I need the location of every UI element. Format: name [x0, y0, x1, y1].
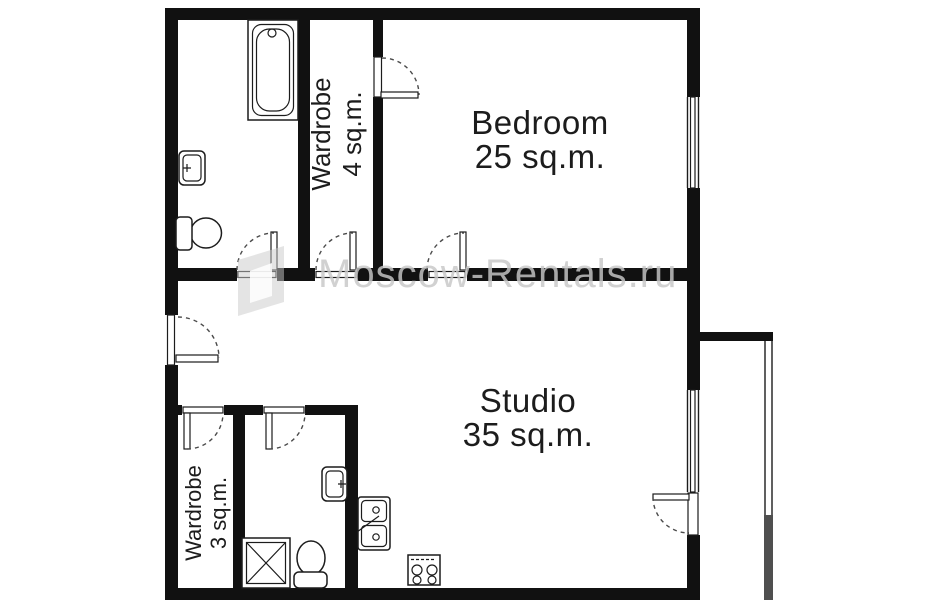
wall-middle-seg1 — [178, 268, 237, 281]
wall-wardrobe4-bedroom-upper — [373, 20, 383, 57]
wardrobe4-bedroom-door-frame — [374, 57, 382, 97]
wall-right-2 — [687, 188, 700, 390]
bathroom2-door-sill — [264, 407, 304, 413]
wash-basin-2-icon — [322, 467, 347, 501]
shower-icon — [242, 538, 290, 588]
wardrobe-3-label: Wardrobe 3 sq.m. — [181, 438, 233, 588]
wall-lower-rooms-top-seg3 — [305, 405, 358, 415]
studio-area: 35 sq.m. — [418, 418, 638, 452]
wall-top — [165, 8, 700, 20]
wardrobe-3-name: Wardrobe — [181, 438, 206, 588]
bathroom2-door-arc — [269, 413, 305, 449]
wardrobe-3-area: 3 sq.m. — [206, 438, 231, 588]
bedroom-label: Bedroom 25 sq.m. — [430, 106, 650, 174]
wardrobe-4-label: Wardrobe 4 sq.m. — [306, 49, 374, 219]
toilet-icon — [176, 217, 222, 250]
floor-plan-drawing — [0, 0, 930, 600]
balcony-glazing — [765, 341, 772, 515]
balcony-door-leaf — [653, 494, 689, 500]
bathtub-icon — [248, 20, 298, 120]
wall-lower-rooms-top-seg2 — [224, 405, 263, 415]
balcony-top-wall — [700, 332, 773, 341]
toilet-2-icon — [294, 541, 327, 588]
entrance-door-arc — [178, 317, 219, 358]
studio-name: Studio — [418, 384, 638, 418]
wall-right-1 — [687, 20, 700, 97]
wardrobe3-door-sill — [183, 407, 223, 413]
wall-right-3 — [687, 535, 700, 588]
floor-plan: Bedroom 25 sq.m. Studio 35 sq.m. Wardrob… — [0, 0, 930, 600]
entrance-door-frame — [168, 315, 175, 365]
wardrobe4-bedroom-door-arc — [382, 58, 419, 95]
entrance-door-leaf — [176, 355, 218, 362]
bedroom-window — [686, 97, 700, 188]
wall-left-upper — [165, 8, 178, 315]
watermark-text: Moscow-Rentals.ru — [318, 252, 677, 297]
wall-lower-rooms-top-seg1 — [178, 405, 182, 415]
watermark-logo — [238, 246, 284, 316]
wardrobe4-bedroom-door-leaf — [381, 92, 418, 98]
wardrobe-4-name: Wardrobe — [306, 49, 337, 219]
wash-basin-icon — [179, 151, 205, 185]
studio-label: Studio 35 sq.m. — [418, 384, 638, 452]
bathroom2-door-leaf — [266, 413, 272, 449]
kitchen-sink-icon — [357, 497, 390, 550]
bedroom-name: Bedroom — [430, 106, 650, 140]
balcony-panel — [764, 515, 773, 600]
wall-bathroom2-right — [345, 415, 358, 588]
wardrobe-4-area: 4 sq.m. — [337, 49, 368, 219]
balcony-door-arc — [653, 497, 689, 533]
wall-left-lower — [165, 365, 178, 600]
stove-icon — [408, 555, 440, 585]
wall-bottom — [165, 588, 700, 600]
studio-window — [686, 390, 700, 492]
bedroom-area: 25 sq.m. — [430, 140, 650, 174]
